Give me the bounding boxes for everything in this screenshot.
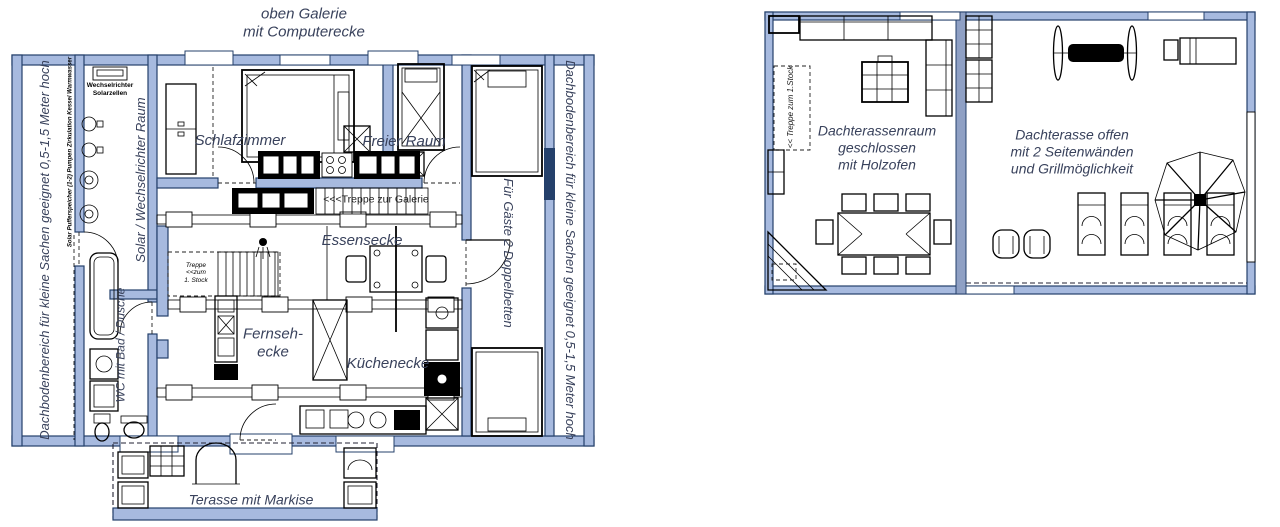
left-building-walls	[12, 55, 594, 446]
divider-wall	[956, 12, 966, 294]
left-building	[12, 51, 594, 520]
dining-table	[838, 213, 930, 255]
kitchenette-row	[258, 151, 420, 179]
right-building	[765, 12, 1255, 294]
guest-window-dark	[544, 148, 555, 200]
stairs-opening	[774, 66, 810, 150]
kitchen-units	[300, 298, 460, 434]
wood-stove	[862, 62, 908, 102]
guest-room-beds	[472, 66, 542, 436]
floor-plan-canvas: oben Galerie mit Computerecke Dachbodenb…	[0, 0, 1280, 527]
open-terrace-furniture	[966, 16, 1245, 258]
parasol	[1155, 152, 1245, 250]
floor-plan-drawing	[0, 0, 1280, 527]
terrace	[113, 443, 377, 520]
bathroom-fixtures	[90, 253, 147, 441]
dining-set	[256, 238, 446, 292]
double-bed	[242, 70, 354, 162]
closed-room-furniture	[768, 16, 952, 290]
stairs-to-gallery	[232, 188, 428, 214]
roof-beam-bands	[157, 212, 462, 400]
